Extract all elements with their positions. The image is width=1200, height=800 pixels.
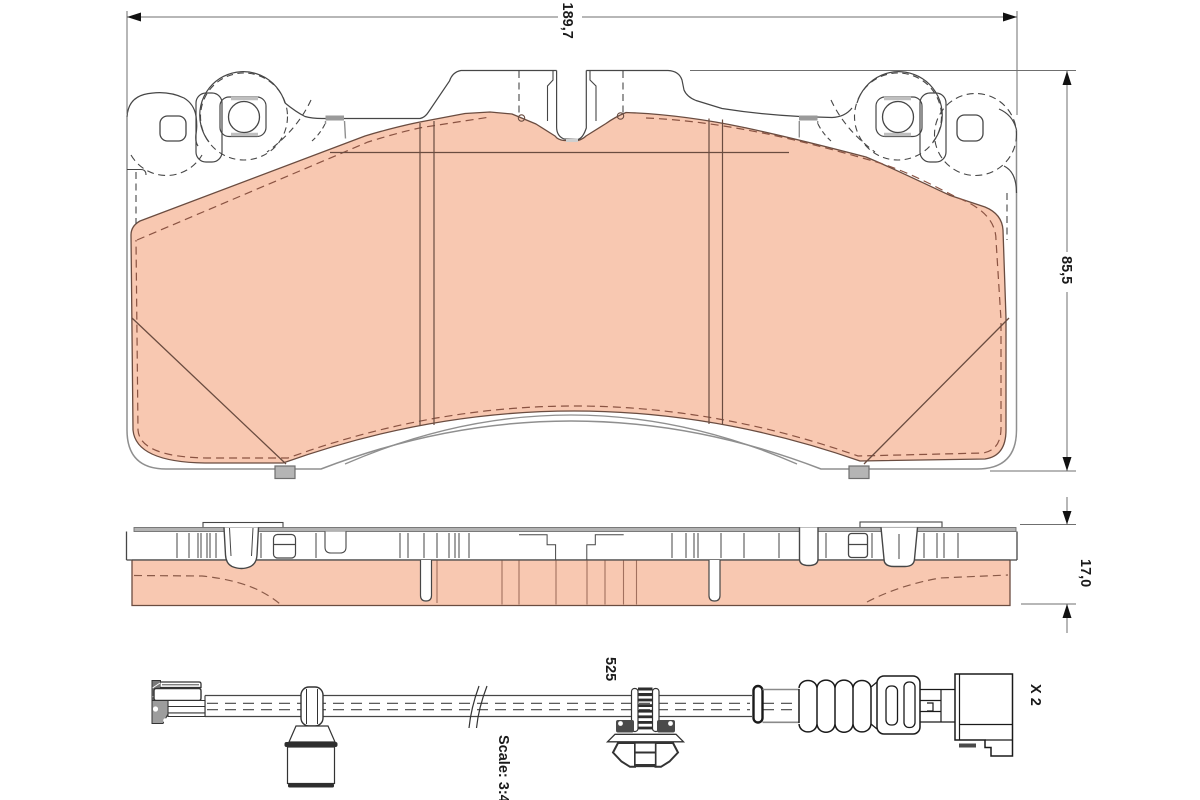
svg-text:17,0: 17,0: [1077, 559, 1093, 587]
svg-text:525: 525: [602, 657, 618, 681]
svg-text:85,5: 85,5: [1058, 256, 1074, 284]
svg-text:X 2: X 2: [1027, 684, 1043, 706]
svg-text:Scale: 3:4: Scale: 3:4: [495, 735, 511, 800]
svg-text:189,7: 189,7: [559, 3, 575, 39]
